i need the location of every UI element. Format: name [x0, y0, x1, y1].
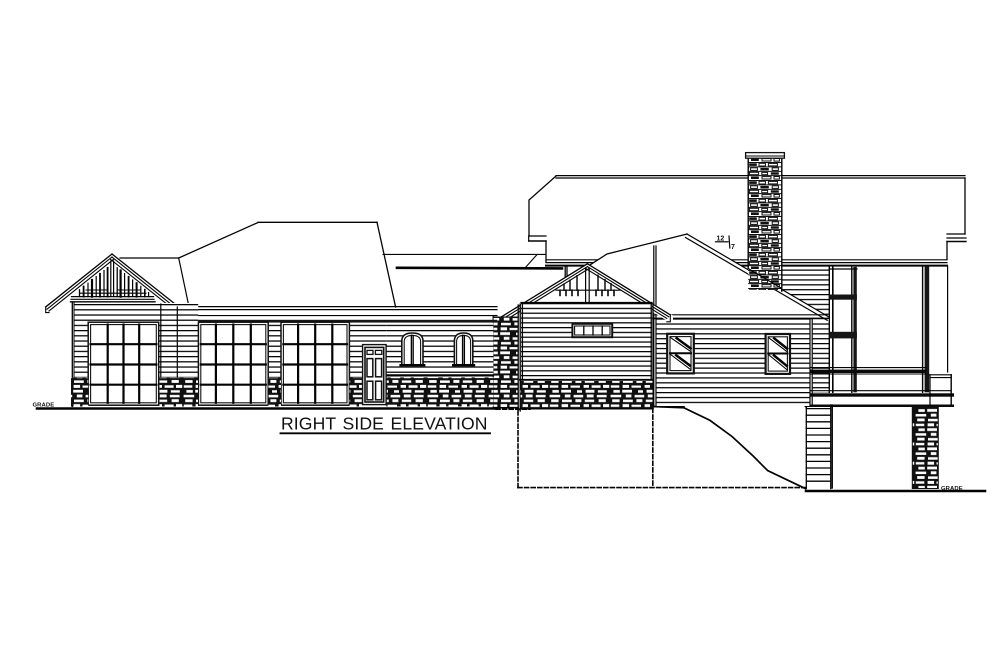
- svg-text:GRADE: GRADE: [33, 402, 55, 408]
- svg-text:RIGHT SIDE ELEVATION: RIGHT SIDE ELEVATION: [281, 414, 488, 434]
- svg-text:7: 7: [731, 244, 735, 251]
- svg-text:GRADE: GRADE: [941, 486, 963, 492]
